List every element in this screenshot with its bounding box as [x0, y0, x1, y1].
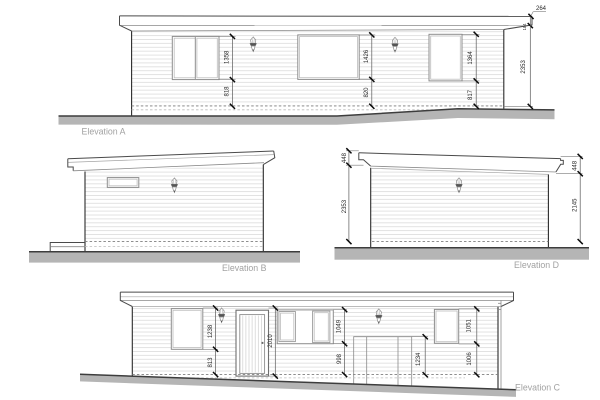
svg-text:Elevation A: Elevation A [82, 127, 126, 137]
svg-text:820: 820 [364, 87, 370, 98]
svg-text:1364: 1364 [468, 51, 474, 65]
svg-text:1358: 1358 [225, 50, 231, 64]
svg-text:Elevation C: Elevation C [515, 383, 561, 393]
svg-text:818: 818 [225, 86, 231, 97]
svg-text:Elevation D: Elevation D [514, 260, 559, 270]
svg-text:184: 184 [522, 23, 527, 31]
svg-text:2353: 2353 [521, 60, 527, 74]
svg-text:1006: 1006 [467, 352, 473, 366]
svg-text:Elevation B: Elevation B [222, 263, 267, 273]
svg-text:2145: 2145 [573, 198, 579, 212]
svg-text:2010: 2010 [268, 334, 274, 348]
svg-text:817: 817 [468, 89, 474, 100]
svg-text:1051: 1051 [466, 318, 472, 332]
svg-text:1238: 1238 [208, 324, 214, 338]
svg-text:813: 813 [208, 357, 214, 368]
svg-text:264: 264 [536, 6, 547, 12]
svg-text:1234: 1234 [416, 352, 422, 366]
svg-text:2353: 2353 [342, 199, 348, 213]
svg-text:448: 448 [573, 160, 579, 171]
svg-text:998: 998 [337, 353, 343, 364]
svg-text:448: 448 [342, 152, 348, 163]
svg-text:1049: 1049 [337, 319, 343, 333]
svg-text:1426: 1426 [364, 49, 370, 63]
